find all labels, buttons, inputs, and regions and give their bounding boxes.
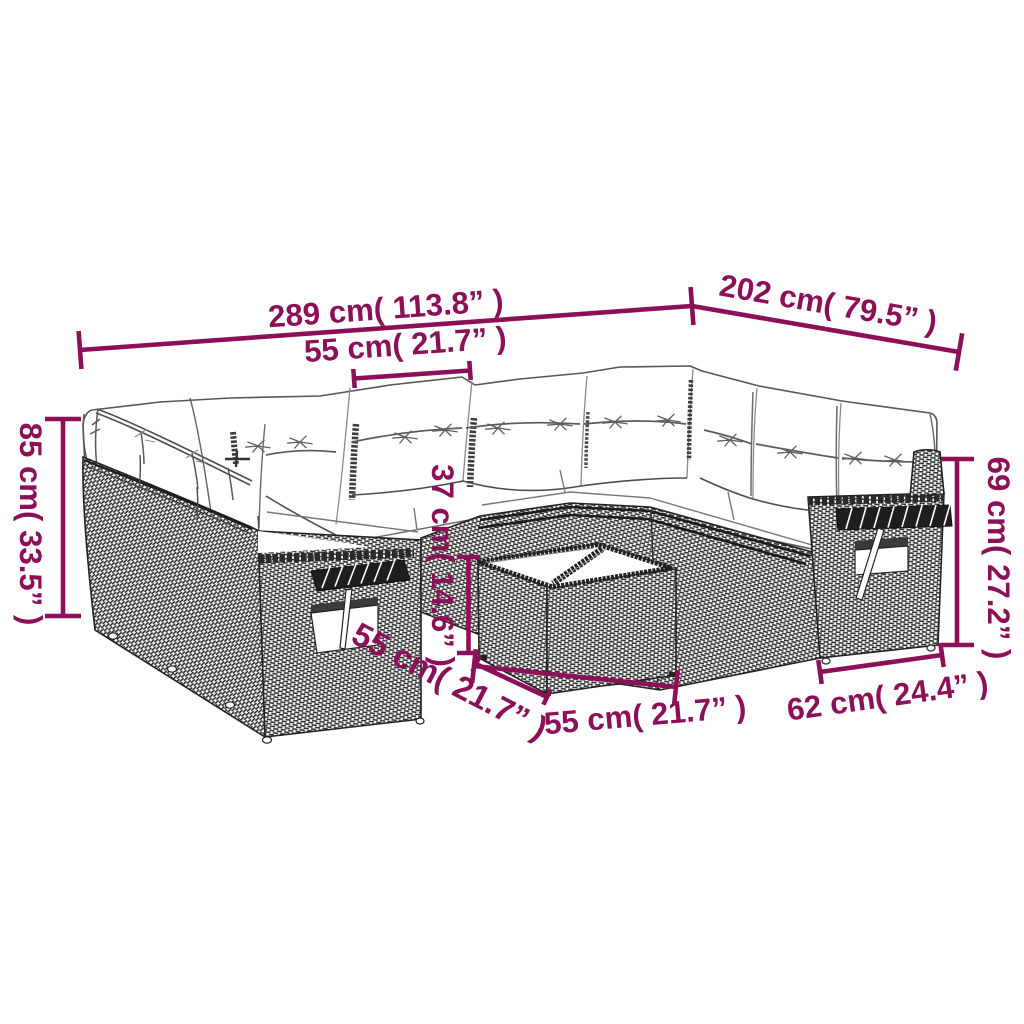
svg-text:69 cm( 27.2” ): 69 cm( 27.2” ) bbox=[981, 457, 1016, 660]
svg-text:37 cm( 14.6” ): 37 cm( 14.6” ) bbox=[425, 464, 460, 667]
svg-text:85 cm( 33.5” ): 85 cm( 33.5” ) bbox=[13, 423, 48, 626]
